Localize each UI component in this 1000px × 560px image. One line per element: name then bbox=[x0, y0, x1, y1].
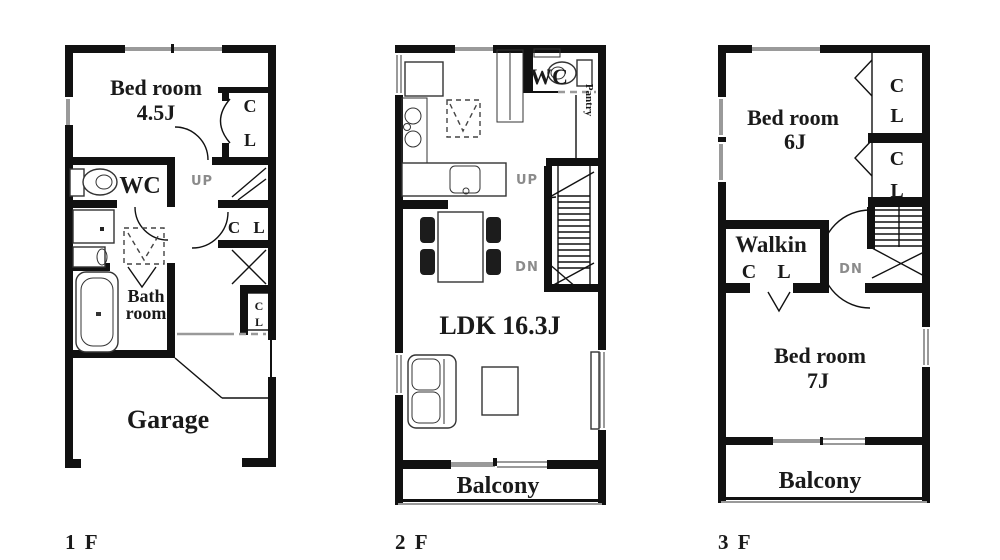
closet2-l-3f: L bbox=[890, 180, 903, 202]
pantry-label: Pantry bbox=[583, 84, 595, 117]
closet-mid-c-1f: C bbox=[228, 218, 240, 237]
living-table-icon bbox=[482, 367, 518, 415]
wc-label-2f: WC bbox=[530, 64, 568, 89]
bedroom-6j-label-line2: 6J bbox=[784, 129, 806, 154]
sofa-icon bbox=[408, 355, 456, 428]
bedroom-6j-label-line1: Bed room bbox=[747, 105, 839, 130]
washing-machine-pan-icon bbox=[124, 228, 164, 264]
closet-mid-l-1f: L bbox=[253, 218, 264, 237]
up-label-1f: UP bbox=[191, 174, 213, 189]
bedroom-7j-label-line1: Bed room bbox=[774, 343, 866, 368]
walkin-label-l: L bbox=[777, 261, 790, 283]
tv-icon bbox=[591, 352, 599, 429]
floor-plan-3f: Bed room 6J C L C L Walkin C L DN Bed ro… bbox=[718, 45, 930, 554]
closet-top-c-1f: C bbox=[244, 96, 257, 116]
walkin-label-c: C bbox=[742, 261, 756, 283]
kitchen-island-sink-icon bbox=[402, 163, 506, 196]
up-label-2f: UP bbox=[516, 173, 538, 188]
balcony-label-2f: Balcony bbox=[457, 473, 540, 499]
kitchen-cabinet-icon bbox=[497, 50, 523, 122]
bedroom-45j-label-line2: 4.5J bbox=[137, 100, 176, 125]
floor-plan-1f: Bed room 4.5J WC UP C L C L C L Bath roo… bbox=[65, 44, 276, 554]
closet1-c-3f: C bbox=[890, 75, 904, 97]
garage-label: Garage bbox=[127, 405, 209, 434]
floor-label-1f: 1 F bbox=[65, 530, 100, 554]
closet1-l-3f: L bbox=[890, 105, 903, 127]
bathroom-label-line2: room bbox=[126, 303, 167, 323]
ldk-label: LDK 16.3J bbox=[439, 311, 560, 340]
closet-top-l-1f: L bbox=[244, 130, 256, 150]
dn-label-3f: DN bbox=[839, 262, 863, 277]
dining-set-icon bbox=[420, 212, 501, 282]
floor-plan-2f: WC Pantry UP DN LDK 16.3J Balcony 2 F bbox=[395, 45, 606, 554]
stairs-2f bbox=[548, 166, 594, 292]
floor-plan-page: Bed room 4.5J WC UP C L C L C L Bath roo… bbox=[0, 0, 1000, 560]
dn-label-2f: DN bbox=[515, 260, 539, 275]
labels-3f: Bed room 6J C L C L Walkin C L DN Bed ro… bbox=[718, 75, 904, 554]
closet-small-c-1f: C bbox=[255, 299, 264, 313]
bathtub-icon bbox=[76, 272, 118, 352]
toilet-icon bbox=[70, 169, 117, 196]
bedroom-7j-label-line2: 7J bbox=[807, 368, 829, 393]
balcony-label-3f: Balcony bbox=[779, 468, 862, 494]
bedroom-45j-label-line1: Bed room bbox=[110, 75, 202, 100]
appliance-space-icon bbox=[447, 100, 480, 137]
washbasin-icon bbox=[73, 210, 114, 243]
refrigerator-icon bbox=[405, 62, 443, 96]
kitchen-2f bbox=[402, 50, 523, 196]
wc-label-1f: WC bbox=[119, 173, 160, 199]
floor-label-3f: 3 F bbox=[718, 530, 753, 554]
closet2-c-3f: C bbox=[890, 148, 904, 170]
stairs-3f bbox=[872, 207, 928, 278]
floor-plans-drawing: Bed room 4.5J WC UP C L C L C L Bath roo… bbox=[0, 0, 1000, 560]
floor-label-2f: 2 F bbox=[395, 530, 430, 554]
closet-small-l-1f: L bbox=[255, 315, 263, 329]
labels-2f: WC Pantry UP DN LDK 16.3J Balcony 2 F bbox=[395, 64, 595, 554]
walkin-label-line1: Walkin bbox=[735, 232, 807, 257]
laundry-sink-icon bbox=[73, 247, 107, 267]
